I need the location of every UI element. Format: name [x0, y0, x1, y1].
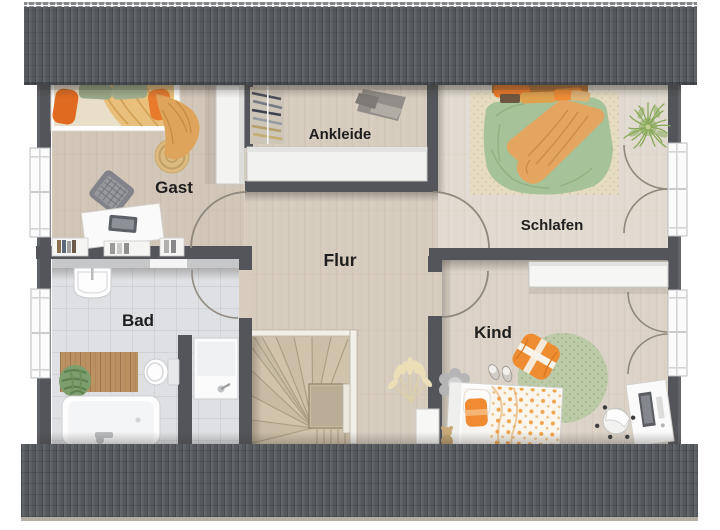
svg-text:Ankleide: Ankleide [309, 126, 372, 143]
svg-text:Bad: Bad [122, 311, 154, 330]
svg-text:Gast: Gast [155, 178, 193, 197]
svg-text:Kind: Kind [474, 323, 512, 342]
svg-text:Flur: Flur [323, 250, 356, 270]
svg-text:Schlafen: Schlafen [521, 217, 584, 234]
